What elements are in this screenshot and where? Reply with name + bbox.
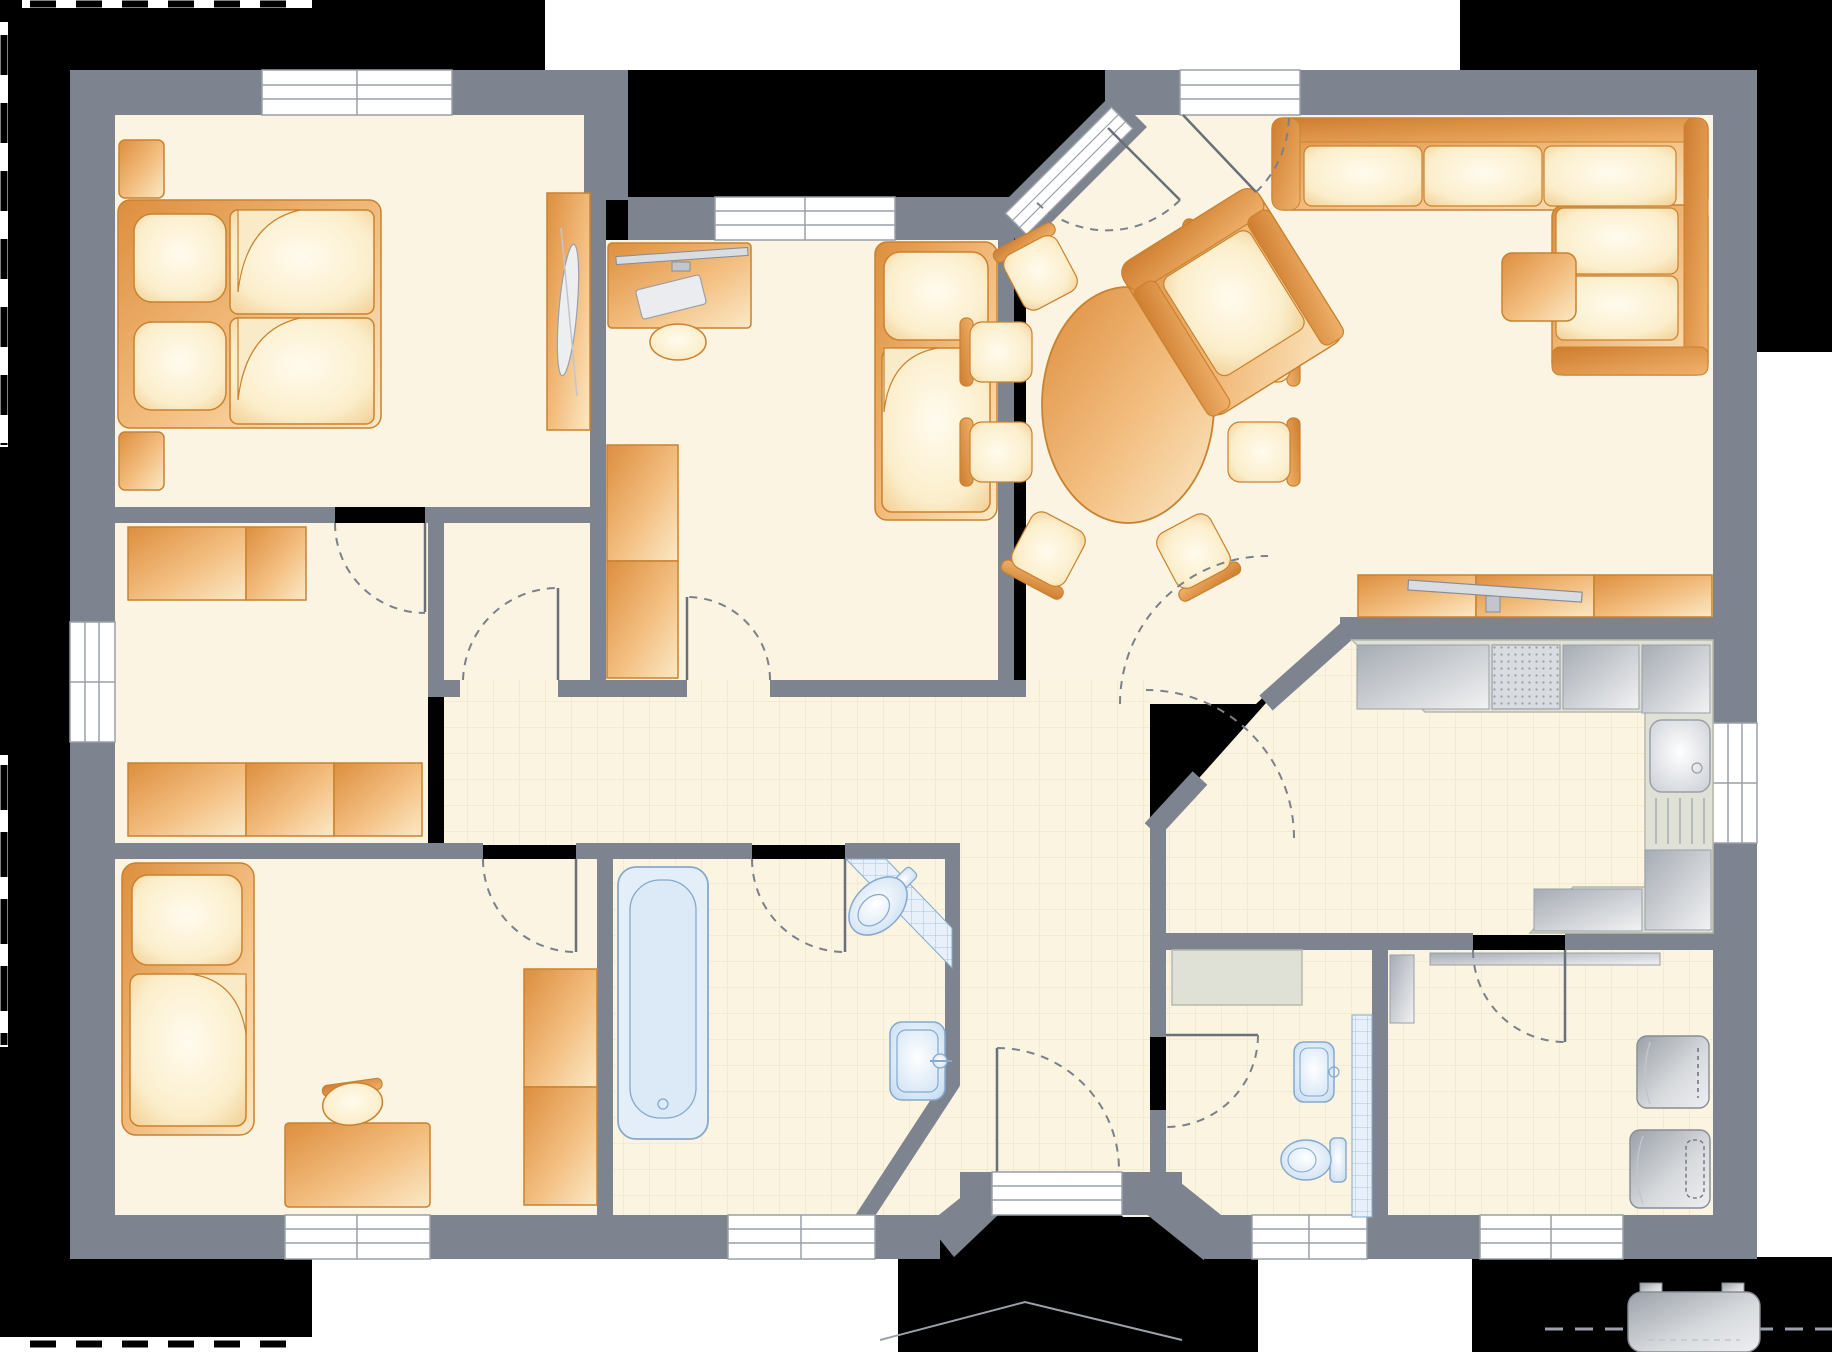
wall-ext-right	[1713, 70, 1757, 1259]
wall-wc-right	[1372, 950, 1388, 1217]
wall-entry-stub-left	[960, 1172, 992, 1215]
rect	[1628, 1292, 1760, 1352]
wall-utility-top	[1565, 933, 1757, 950]
wall-hall-top-a	[428, 680, 460, 697]
child-pillow	[132, 875, 242, 965]
front-door-threshold	[992, 1172, 1122, 1215]
wc-toilet-tank	[1330, 1138, 1346, 1182]
rect	[970, 422, 1032, 482]
dressing-sideboard-1a	[128, 527, 246, 600]
child-duvet	[130, 974, 246, 1126]
floor-plan-svg	[0, 0, 1832, 1352]
dining-chair-6	[1228, 418, 1300, 486]
wall-bath-top-a	[443, 843, 483, 859]
office-wardrobe-a	[607, 445, 678, 561]
kitchen-cabinet-corner-low	[1645, 850, 1711, 930]
master-pillow-2	[134, 322, 226, 410]
kitchen-sink	[1650, 720, 1710, 792]
wall-bath-top-b	[576, 843, 752, 859]
wc-vanity-counter	[1172, 950, 1302, 1005]
wall-hall-right-b	[1150, 1110, 1166, 1217]
tv-stand	[1486, 596, 1500, 612]
bg-black-notch	[628, 70, 998, 200]
sofa-back-right	[1684, 118, 1708, 375]
rect	[1228, 422, 1290, 482]
wall-bath-top-c	[845, 843, 960, 859]
bg-white-right	[1757, 352, 1832, 1257]
floor-hallway-tiles	[444, 680, 1150, 845]
floor-plan-stage	[0, 0, 1832, 1352]
bg-white-bottom-left	[312, 1259, 898, 1352]
sofa-cushion-3	[1544, 146, 1676, 206]
wall-child-right	[597, 859, 613, 1215]
dining-chair-4	[960, 418, 1032, 486]
bg-white-top	[545, 0, 1460, 70]
office-monitor-foot	[672, 262, 690, 271]
coffee-table	[1502, 253, 1576, 321]
kitchen-cabinet-3	[1534, 889, 1642, 931]
master-pillow-1	[134, 214, 226, 302]
car	[1628, 1283, 1760, 1352]
kitchen-cabinet-corner	[1642, 645, 1710, 713]
utility-cabinet	[1390, 955, 1414, 1023]
rect	[970, 322, 1032, 382]
bg-white-bottom-mid	[1258, 1259, 1472, 1352]
dressing-sideboard-2b	[246, 763, 334, 836]
terrace-door-top	[1180, 70, 1300, 115]
kitchen-stove	[1492, 645, 1560, 709]
dryer	[1630, 1130, 1710, 1208]
sofa-cushion-2	[1424, 146, 1542, 206]
kitchen-cabinet-2	[1563, 645, 1639, 709]
wc-tile-wall	[1352, 1015, 1372, 1217]
child-wardrobe-b	[524, 1087, 597, 1205]
tv-sideboard-c	[1594, 575, 1712, 617]
wall-kitchen-top	[1340, 617, 1757, 640]
sofa-armrest-bottom	[1552, 347, 1708, 375]
sofa-cushion-1	[1304, 146, 1422, 206]
dining-chair-3	[960, 318, 1032, 386]
wall-dressing-bottom	[70, 843, 443, 859]
wall-master-right	[590, 115, 606, 680]
wall-hall-right-a	[1150, 826, 1166, 1037]
wall-hall-top-b	[558, 680, 687, 697]
utility-shelf	[1430, 953, 1660, 965]
wall-wc-top	[1150, 933, 1473, 950]
wall-dressing-right	[428, 523, 444, 680]
kitchen-cabinet-1	[1357, 645, 1489, 709]
office-chair	[650, 324, 706, 360]
floor-hall-entry-tiles	[960, 843, 1150, 1217]
wall-hall-top-c	[770, 680, 1026, 697]
sofa-back-top	[1272, 118, 1708, 142]
wall-master-bottom-b	[425, 507, 606, 523]
office-wardrobe-b	[607, 561, 678, 678]
master-nightstand-bottom	[119, 432, 164, 490]
dressing-sideboard-2c	[334, 763, 422, 836]
child-desk	[285, 1123, 430, 1207]
wall-master-bottom-a	[70, 507, 335, 523]
dressing-sideboard-1b	[246, 527, 306, 600]
bathtub-inner	[630, 880, 696, 1118]
wall-bath-right	[945, 859, 960, 1085]
master-nightstand-top	[119, 140, 164, 198]
dressing-sideboard-2a	[128, 763, 246, 836]
child-wardrobe-a	[524, 969, 597, 1087]
